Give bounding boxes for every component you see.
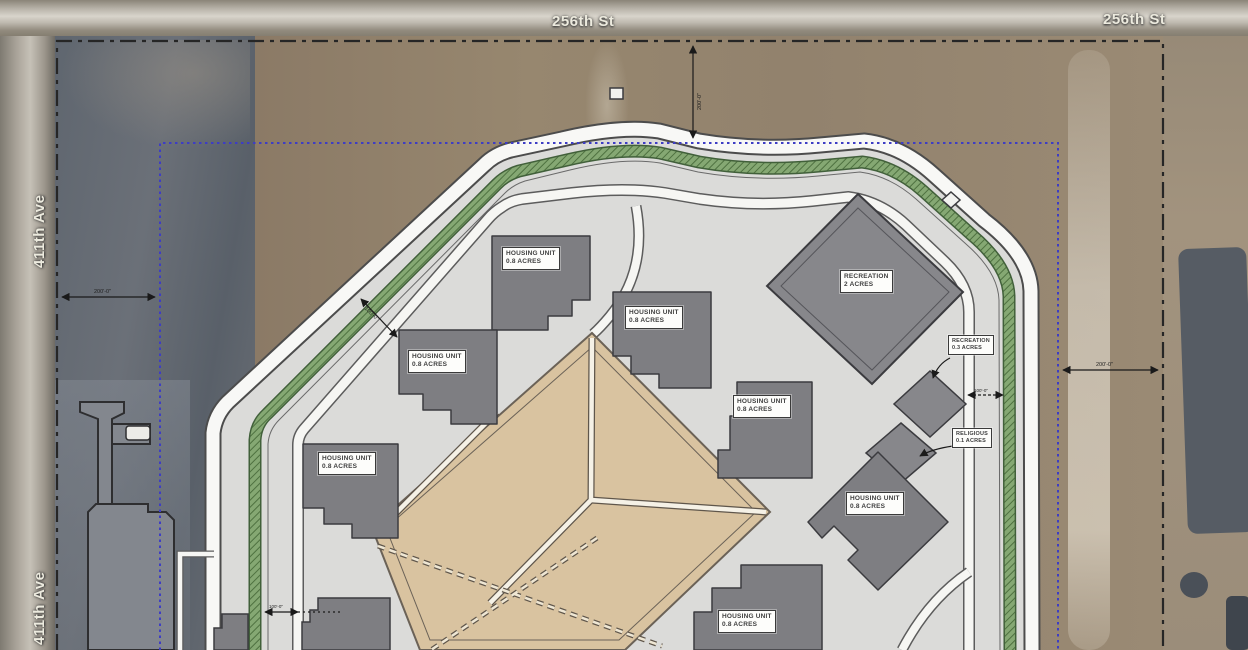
street-label-256th-center: 256th St <box>552 13 614 30</box>
dimension-text-north: 200'-0" <box>697 93 703 110</box>
street-label-411th-upper: 411th Ave <box>31 195 48 268</box>
site-plan-map: 256th St 256th St 411th Ave 411th Ave HO… <box>0 0 1248 650</box>
dimension-text-recreation-gap: 100'-0" <box>974 388 988 393</box>
housing-unit-label-7: HOUSING UNIT 0.8 ACRES <box>718 610 776 633</box>
recreation-large-label: RECREATION 2 ACRES <box>840 270 893 293</box>
site-plan-overlay <box>0 0 1248 650</box>
street-label-256th-right: 256th St <box>1103 11 1165 28</box>
dimension-text-east: 200'-0" <box>1096 362 1113 368</box>
housing-unit-label-1: HOUSING UNIT 0.8 ACRES <box>502 247 560 270</box>
religious-label: RELIGIOUS 0.1 ACRES <box>952 428 992 448</box>
housing-unit-label-3: HOUSING UNIT 0.8 ACRES <box>408 350 466 373</box>
housing-unit-label-6: HOUSING UNIT 0.8 ACRES <box>846 492 904 515</box>
housing-unit-label-2: HOUSING UNIT 0.8 ACRES <box>625 306 683 329</box>
housing-unit-label-5: HOUSING UNIT 0.8 ACRES <box>318 452 376 475</box>
housing-unit-label-4: HOUSING UNIT 0.8 ACRES <box>733 395 791 418</box>
street-label-411th-lower: 411th Ave <box>31 572 48 645</box>
small-structure-marker <box>126 426 150 440</box>
dimension-text-west: 200'-0" <box>94 289 111 295</box>
dimension-text-south-gap: 100'-0" <box>269 604 283 609</box>
utility-marker-square-icon <box>610 88 623 99</box>
recreation-small-label: RECREATION 0.3 ACRES <box>948 335 994 355</box>
